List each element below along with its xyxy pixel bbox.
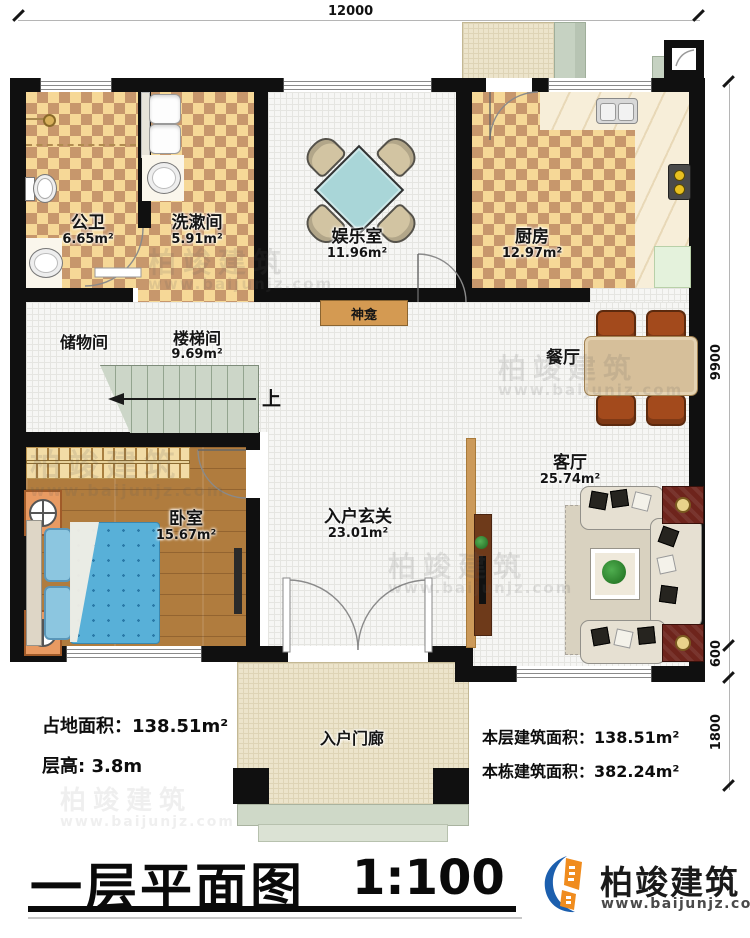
room-label-stairwell: 楼梯间9.69m²: [171, 330, 222, 362]
floor-plan-page: 12000 9900 600 1800: [0, 0, 750, 938]
room-label-foyer: 入户玄关23.01m²: [324, 508, 392, 542]
room-label-storage: 储物间: [60, 334, 108, 352]
room-label-bedroom: 卧室15.67m²: [156, 510, 216, 544]
stat-land-area: 占地面积：138.51m²: [42, 712, 228, 738]
stairs-up-label: 上: [262, 384, 281, 411]
room-label-porch: 入户门廊: [320, 730, 384, 748]
room-label-entertainment: 娱乐室11.96m²: [327, 228, 387, 262]
stat-floor-height: 层高: 3.8m: [42, 752, 142, 778]
door-swings-svg: [0, 0, 750, 938]
stat-building-area: 本栋建筑面积：382.24m²: [482, 758, 679, 782]
page-title-scale: 1:100: [352, 850, 505, 906]
room-label-kitchen: 厨房12.97m²: [502, 228, 562, 262]
room-label-living: 客厅25.74m²: [540, 454, 600, 488]
brand-logo-icon: [540, 854, 594, 914]
room-label-washroom: 洗漱间5.91m²: [171, 214, 222, 248]
room-label-bathroom: 公卫6.65m²: [62, 214, 113, 248]
title-underline-thin: [28, 917, 522, 919]
title-underline: [28, 906, 516, 912]
brand-url: www.baijunjz.com: [601, 896, 750, 912]
room-label-dining: 餐厅: [546, 343, 580, 368]
stat-floor-area: 本层建筑面积：138.51m²: [482, 724, 679, 748]
